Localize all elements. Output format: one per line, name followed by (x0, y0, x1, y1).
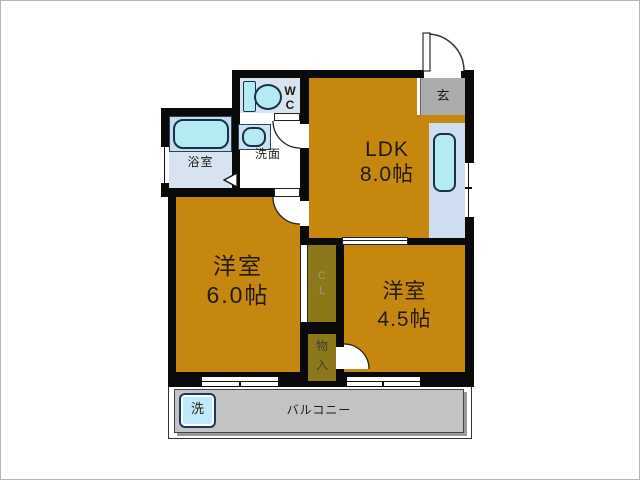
ldk-size-label: 8.0帖 (309, 163, 465, 186)
bedroom6-label: 洋室 (176, 254, 300, 279)
bathroom-door-marker (224, 173, 237, 187)
closet-label-line2: L (307, 284, 337, 299)
ldk-label: LDK (309, 138, 465, 161)
bathroom-label: 浴室 (169, 156, 232, 169)
wc-label: W C (281, 84, 299, 112)
door-arcs-layer (0, 0, 640, 480)
storage-label-line1: 物 (307, 337, 337, 356)
closet-label-line1: C (307, 269, 337, 284)
bedroom6-size-label: 6.0帖 (176, 283, 300, 308)
floor-plan: バルコニー 洗 (0, 0, 640, 480)
storage-label: 物 入 (307, 337, 337, 375)
storage-label-line2: 入 (307, 356, 337, 375)
washroom-label: 洗面 (238, 148, 298, 161)
bedroom45-size-label: 4.5帖 (344, 308, 465, 331)
wc-label-line2: C (281, 98, 299, 112)
bedroom45-label: 洋室 (344, 280, 465, 303)
closet-label: C L (307, 269, 337, 299)
entrance-label: 玄 (421, 89, 465, 103)
entrance-door-leaf (423, 33, 430, 71)
wc-label-line1: W (281, 84, 299, 98)
